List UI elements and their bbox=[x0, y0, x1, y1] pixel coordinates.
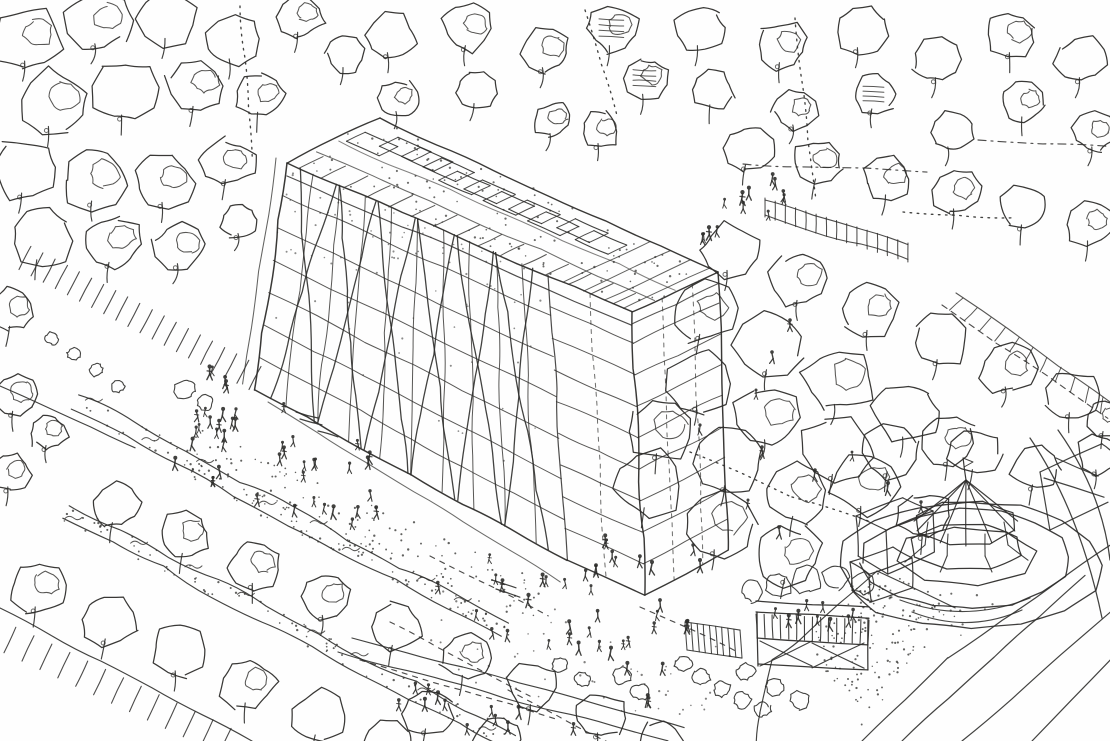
architectural-sketch bbox=[0, 0, 1110, 741]
sketch-canvas bbox=[0, 0, 1110, 741]
